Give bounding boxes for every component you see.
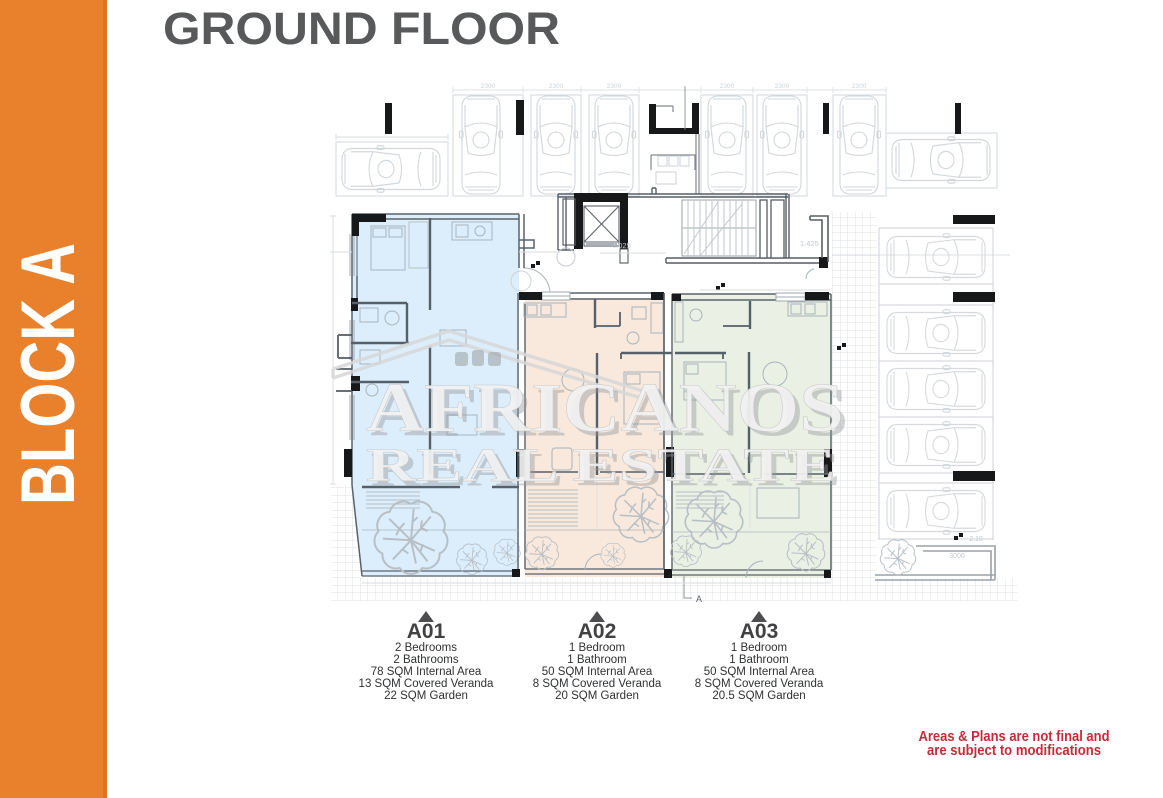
svg-text:A: A [696,594,702,604]
svg-text:1 Bedroom: 1 Bedroom [731,642,787,654]
svg-text:REAL ESTATE: REAL ESTATE [366,439,836,492]
svg-text:22 SQM Garden: 22 SQM Garden [384,690,468,702]
svg-text:2.10: 2.10 [969,536,983,543]
svg-text:20 SQM Garden: 20 SQM Garden [555,690,639,702]
svg-text:8 SQM Covered Veranda: 8 SQM Covered Veranda [695,678,824,690]
svg-text:A02: A02 [578,620,617,643]
svg-text:8 SQM Covered Veranda: 8 SQM Covered Veranda [533,678,662,690]
svg-text:50 SQM Internal Area: 50 SQM Internal Area [542,666,653,678]
svg-text:2300: 2300 [775,83,790,90]
svg-text:1 Bedroom: 1 Bedroom [569,642,625,654]
svg-text:2300: 2300 [481,83,496,90]
svg-text:50 SQM Internal Area: 50 SQM Internal Area [704,666,815,678]
svg-text:are subject to modifications: are subject to modifications [927,743,1101,759]
svg-text:4.025: 4.025 [612,241,631,250]
svg-text:2300: 2300 [720,83,735,90]
svg-text:3000: 3000 [949,553,965,560]
svg-text:1 Bathroom: 1 Bathroom [729,654,788,666]
svg-text:A01: A01 [407,620,446,643]
svg-text:2300: 2300 [852,83,867,90]
svg-text:1.425: 1.425 [800,239,819,248]
svg-text:2 Bedrooms: 2 Bedrooms [395,642,457,654]
svg-text:20.5 SQM Garden: 20.5 SQM Garden [712,690,805,702]
svg-text:AFRICANOS: AFRICANOS [366,370,844,447]
svg-text:2300: 2300 [607,83,622,90]
svg-text:GROUND FLOOR: GROUND FLOOR [163,3,560,54]
svg-text:78 SQM Internal Area: 78 SQM Internal Area [371,666,482,678]
svg-text:BLOCK A: BLOCK A [6,243,91,505]
svg-text:13 SQM Covered Veranda: 13 SQM Covered Veranda [359,678,494,690]
svg-text:2 Bathrooms: 2 Bathrooms [393,654,458,666]
svg-text:A03: A03 [740,620,779,643]
svg-text:1 Bathroom: 1 Bathroom [567,654,626,666]
svg-text:2300: 2300 [549,83,564,90]
